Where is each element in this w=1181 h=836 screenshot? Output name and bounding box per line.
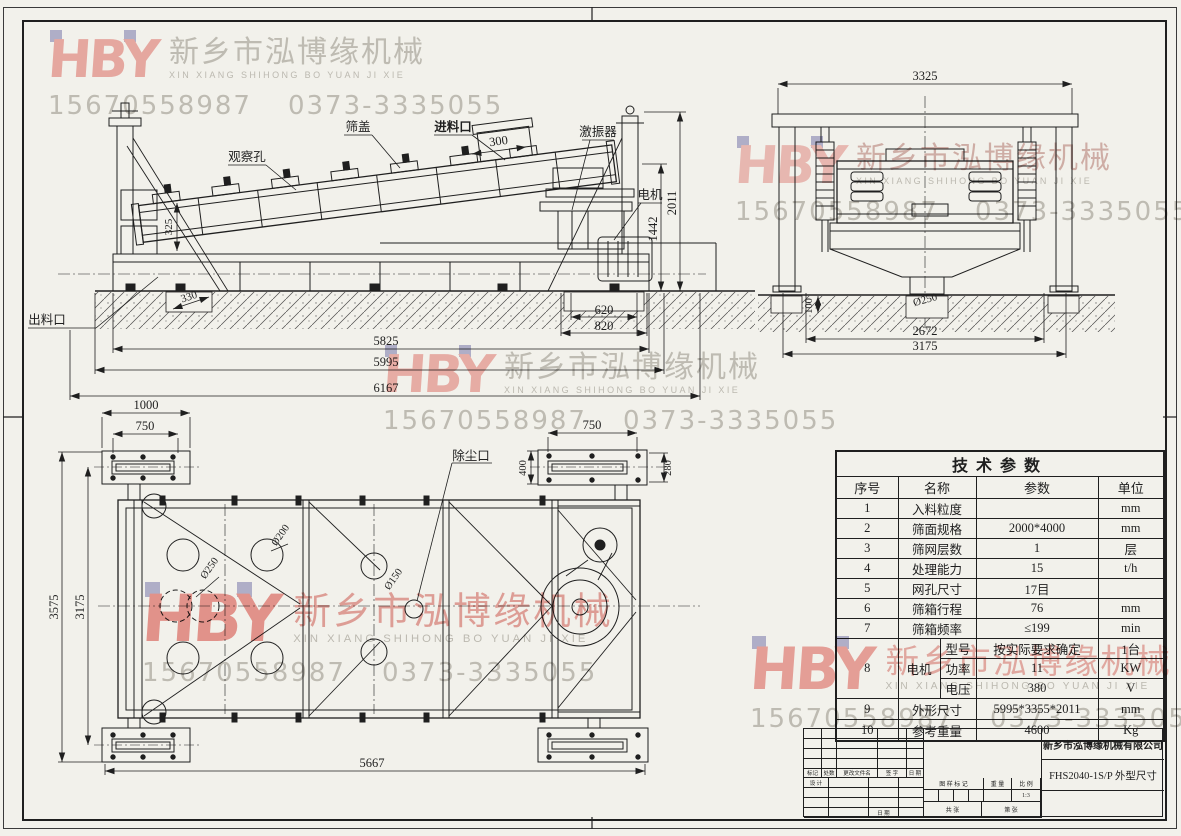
title-block: 标记 处数 更改文件名 签 字 日 期 设 计 日 期 图 样 标 记 重 量 … [803,728,1163,817]
drawing-sheet: 观察孔 筛盖 进料口 激振器 电机 出料口 300 325 330 620 82… [0,0,1181,836]
dim-1000: 1000 [134,398,159,412]
motor-label: 电机 [898,639,940,699]
dim-5667: 5667 [360,756,385,770]
label-screen-cover: 筛盖 [345,119,370,134]
table-row: 1入料粒度mm [836,499,1164,519]
table-row: 2筛面规格2000*4000mm [836,519,1164,539]
col-name: 名称 [898,477,976,499]
dim-3325: 3325 [913,69,938,83]
drawing-number: FHS2040-1S/P 外型尺寸 [1042,760,1164,791]
plan-view [58,413,700,775]
dim-3575: 3575 [47,595,61,620]
dim-325: 325 [163,218,175,235]
dim-5825: 5825 [374,334,399,348]
label-discharge-outlet: 出料口 [28,313,66,327]
revision-grid: 标记 处数 更改文件名 签 字 日 期 [804,729,924,778]
motor-row: 8 电机 型号按实际要求确定1台 [836,639,1164,659]
dim-2672: 2672 [913,324,938,338]
col-no: 序号 [836,477,898,499]
scale-value: 1:3 [1012,790,1041,802]
dim-6167: 6167 [374,381,399,395]
table-row: 9外形尺寸5995*3355*2011mm [836,699,1164,720]
dim-2011: 2011 [665,191,679,216]
col-param: 参数 [976,477,1098,499]
table-row: 3筛网层数1层 [836,539,1164,559]
table-row: 6筛箱行程76mm [836,599,1164,619]
spec-title: 技术参数 [836,451,1164,477]
company-name: 新乡市泓博缘机械有限公司 [1042,729,1164,760]
dim-phi200: Ø200 [270,523,292,548]
dim-100: 100 [804,298,815,314]
table-row: 5网孔尺寸17目 [836,579,1164,599]
label-feed-inlet: 进料口 [434,119,472,134]
dim-300: 300 [488,133,508,149]
signature-grid: 设 计 日 期 [804,778,924,818]
dim-750-left: 750 [136,419,155,433]
dim-750-right: 750 [583,418,602,432]
label-dust-port: 除尘口 [452,448,490,463]
annotation-text: 观察孔 筛盖 进料口 激振器 电机 出料口 300 325 330 620 82… [28,69,939,770]
mark-weight-scale-grid: 图 样 标 记 重 量 比 例 1:3 共 张 第 张 [924,778,1041,818]
col-unit: 单位 [1098,477,1164,499]
title-block-right: 新乡市泓博缘机械有限公司 FHS2040-1S/P 外型尺寸 [1041,729,1164,818]
dim-3175-plan: 3175 [73,595,87,620]
dim-5995: 5995 [374,355,399,369]
table-row: 4处理能力15t/h [836,559,1164,579]
end-view [758,84,1115,358]
dim-620: 620 [595,303,614,317]
dim-820: 820 [595,319,614,333]
dim-280: 280 [663,460,674,476]
dim-3175-end: 3175 [913,339,938,353]
label-observation-hole: 观察孔 [228,150,266,164]
dim-1442: 1442 [646,217,660,242]
label-exciter: 激振器 [579,125,617,139]
dim-400: 400 [518,460,529,476]
dim-phi250-plan: Ø250 [199,556,221,581]
table-row: 7筛箱频率≤199min [836,619,1164,639]
label-motor: 电机 [637,188,663,202]
spec-table: 技术参数 序号 名称 参数 单位 1入料粒度mm 2筛面规格2000*4000m… [835,450,1165,742]
